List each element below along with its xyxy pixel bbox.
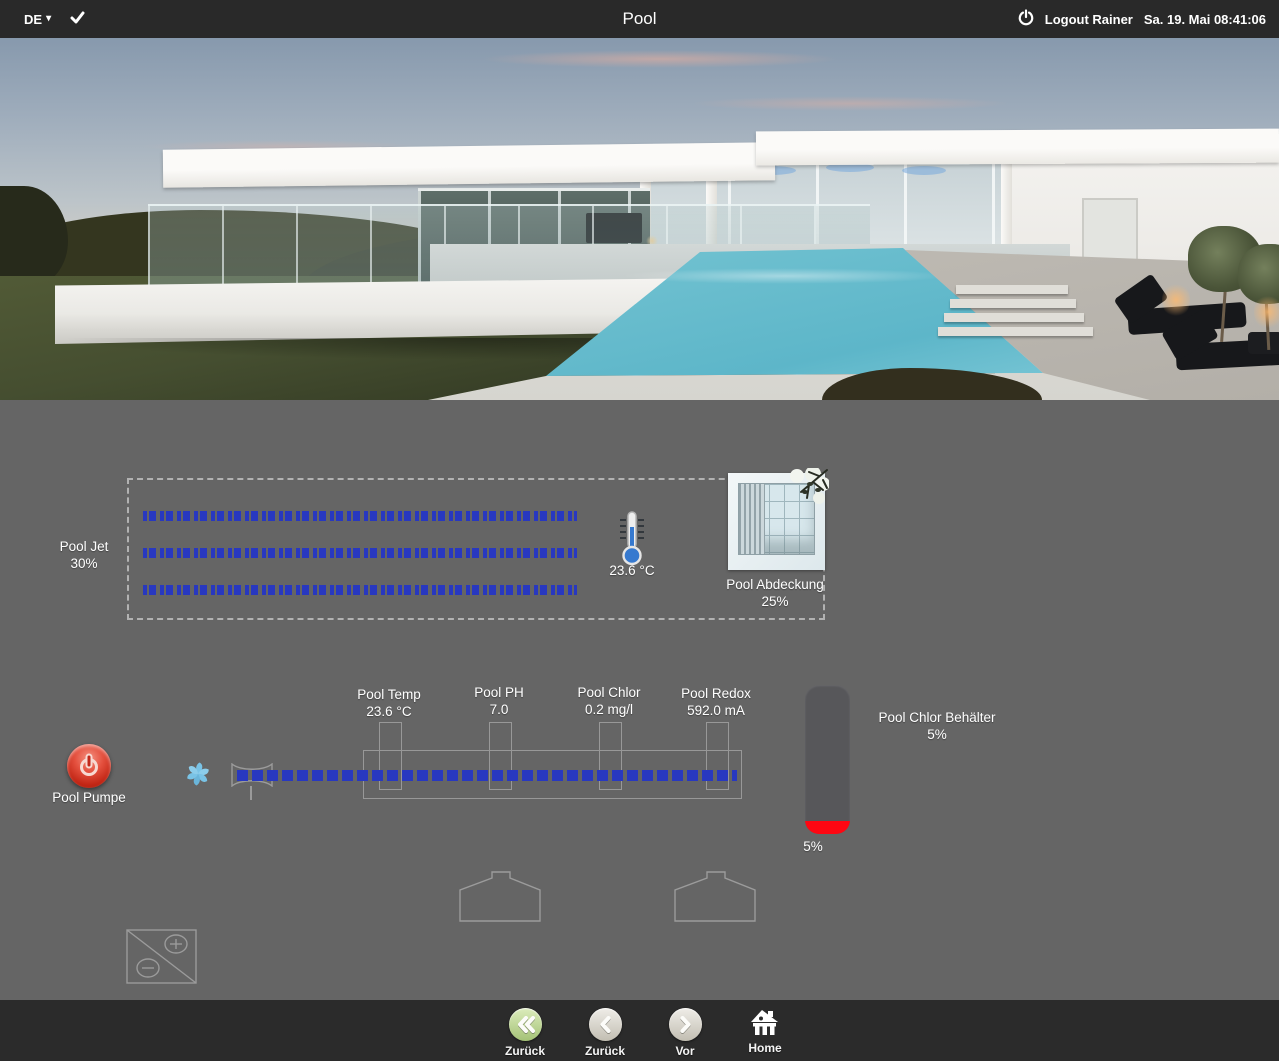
nav-label: Zurück — [570, 1044, 640, 1058]
pool-cover-label-group: Pool Abdeckung 25% — [715, 576, 835, 610]
sensor-pool-temp: Pool Temp 23.6 °C — [329, 686, 449, 720]
pool-jet-flow-row — [143, 585, 577, 595]
chevron-right-icon — [669, 1008, 702, 1041]
chlor-tank — [805, 685, 850, 834]
bottom-nav-bar: Zurück Zurück Vor — [0, 1000, 1279, 1061]
clock-datetime: Sa. 19. Mai 08:41:06 — [1144, 12, 1266, 27]
pool-control-page: DE ▾ Pool Logout Rainer Sa. 19. Mai 08:4… — [0, 0, 1279, 1061]
pool-pump-label: Pool Pumpe — [39, 789, 139, 806]
snowy-branch-icon — [779, 468, 829, 517]
nav-back-button[interactable]: Zurück — [570, 1006, 640, 1058]
sensor-pool-ph: Pool PH 7.0 — [439, 684, 559, 718]
nav-home-button[interactable]: Home — [730, 1006, 800, 1055]
pool-jet-value: 30% — [24, 555, 144, 572]
pool-jet-flow-row — [143, 548, 577, 558]
canister-outline-icon — [673, 871, 757, 927]
photo-roof-slab-left — [163, 142, 775, 187]
nav-label: Zurück — [490, 1044, 560, 1058]
logout-button[interactable]: Logout Rainer — [1045, 12, 1133, 27]
sensor-pool-chlor: Pool Chlor 0.2 mg/l — [549, 684, 669, 718]
photo-wall-light — [1254, 294, 1279, 330]
sensor-label: Pool Temp — [329, 686, 449, 703]
pool-cover-image[interactable] — [728, 473, 825, 570]
sensor-label: Pool PH — [439, 684, 559, 701]
photo-wall-light — [1162, 282, 1190, 318]
venturi-drain-line — [250, 786, 252, 800]
power-icon[interactable] — [1018, 9, 1034, 29]
photo-skylight — [902, 166, 946, 175]
pool-pump-power-button[interactable] — [67, 744, 111, 788]
sensor-pool-redox: Pool Redox 592.0 mA — [656, 685, 776, 719]
top-bar: DE ▾ Pool Logout Rainer Sa. 19. Mai 08:4… — [0, 0, 1279, 38]
sensor-value: 23.6 °C — [329, 703, 449, 720]
nav-label: Home — [730, 1041, 800, 1055]
sensor-value: 0.2 mg/l — [549, 701, 669, 718]
pool-jet-flow-row — [143, 511, 577, 521]
pool-jet-label: Pool Jet — [24, 538, 144, 555]
photo-pool-reflection — [620, 268, 950, 284]
canister-outline-icon — [458, 871, 542, 927]
nav-forward-button[interactable]: Vor — [650, 1006, 720, 1058]
pool-cover-value: 25% — [715, 593, 835, 610]
pool-jet-label-group: Pool Jet 30% — [24, 538, 144, 572]
sensor-value: 7.0 — [439, 701, 559, 718]
chlor-tank-value: 5% — [867, 726, 1007, 743]
water-temp-value: 23.6 °C — [592, 562, 672, 579]
photo-step — [944, 313, 1084, 322]
chlor-tank-level-label: 5% — [788, 838, 838, 855]
pool-cover-label: Pool Abdeckung — [715, 576, 835, 593]
sensor-value: 592.0 mA — [656, 702, 776, 719]
nav-back-fast-button[interactable]: Zurück — [490, 1006, 560, 1058]
pipe-flow-animation — [237, 770, 737, 781]
chevron-left-icon — [589, 1008, 622, 1041]
pool-villa-photo — [0, 38, 1279, 400]
chlor-tank-label-group: Pool Chlor Behälter 5% — [867, 709, 1007, 743]
chlor-tank-fill — [805, 821, 850, 834]
photo-side-table — [1248, 332, 1279, 354]
photo-step — [938, 327, 1093, 336]
topbar-right-group: Logout Rainer Sa. 19. Mai 08:41:06 — [1018, 0, 1266, 38]
photo-step — [950, 299, 1076, 308]
photo-step — [956, 285, 1068, 294]
nav-label: Vor — [650, 1044, 720, 1058]
fan-impeller-icon — [185, 761, 211, 792]
double-chevron-left-icon — [509, 1008, 542, 1041]
heat-exchanger-plus-minus-icon — [126, 929, 197, 989]
chlor-tank-label: Pool Chlor Behälter — [867, 709, 1007, 726]
photo-cloud — [690, 96, 1010, 111]
sensor-label: Pool Chlor — [549, 684, 669, 701]
pool-cover-blinds — [739, 484, 765, 554]
sensor-label: Pool Redox — [656, 685, 776, 702]
photo-roof-slab-right — [756, 129, 1279, 166]
home-icon — [750, 1010, 780, 1038]
photo-cloud — [480, 50, 840, 68]
